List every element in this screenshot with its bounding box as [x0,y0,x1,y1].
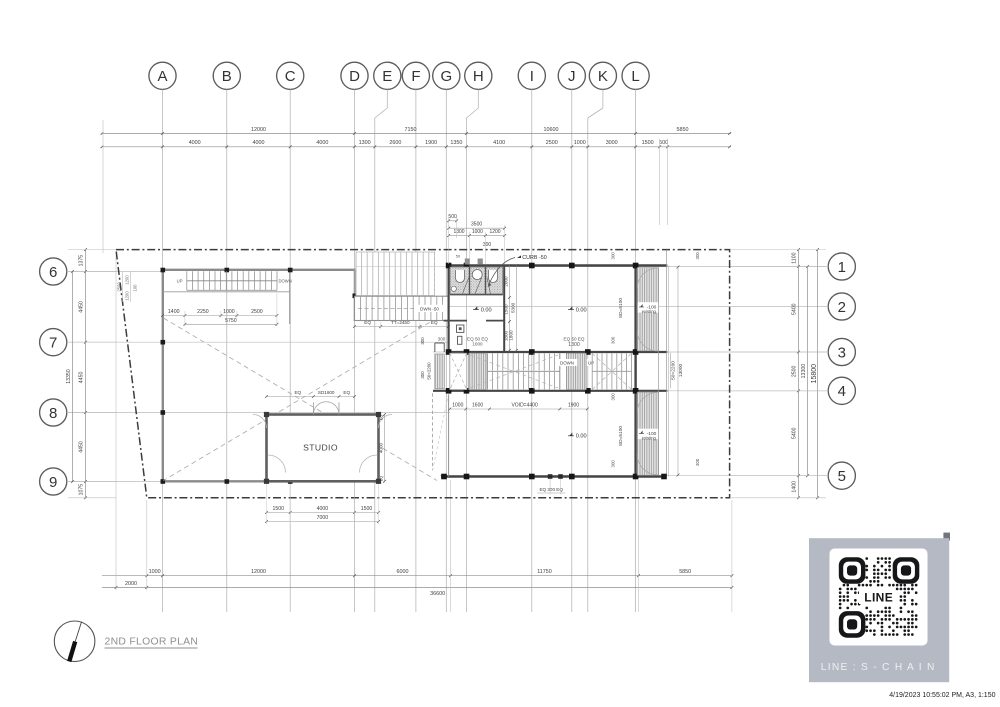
svg-text:EQ: EQ [294,390,301,395]
svg-text:I: I [530,68,534,85]
svg-text:50=2200: 50=2200 [671,361,677,380]
svg-text:6000: 6000 [397,569,409,575]
svg-text:3500: 3500 [471,222,482,228]
svg-text:UP: UP [177,279,183,284]
svg-text:1300: 1300 [453,229,464,235]
svg-text:4: 4 [838,383,846,400]
svg-text:2: 2 [838,299,846,316]
svg-text:EQ: EQ [379,476,383,482]
svg-text:5850: 5850 [677,127,689,133]
svg-text:EQ: EQ [431,320,438,325]
svg-text:DOWN: DOWN [279,279,292,284]
svg-text:1300: 1300 [568,342,580,348]
svg-text:50: 50 [456,253,461,258]
svg-text:300: 300 [610,252,615,260]
svg-text:300: 300 [438,336,446,341]
svg-text:4000: 4000 [317,506,329,512]
svg-text:2250: 2250 [197,309,209,315]
svg-text:1500: 1500 [361,506,373,512]
svg-text:1350: 1350 [450,140,462,146]
svg-text:12000: 12000 [251,127,266,133]
svg-text:1200: 1200 [124,291,129,301]
svg-text:C: C [285,68,296,85]
svg-text:8: 8 [49,405,57,422]
svg-text:1300: 1300 [359,140,371,146]
svg-text:EQ 300 EQ: EQ 300 EQ [539,487,563,492]
svg-text:1200: 1200 [489,229,500,235]
svg-text:7: 7 [49,335,57,352]
svg-text:300: 300 [420,371,425,379]
svg-text:5: 5 [838,468,846,485]
svg-text:1400: 1400 [168,309,180,315]
svg-text:5850: 5850 [679,569,691,575]
svg-text:500: 500 [659,140,668,146]
svg-text:1000: 1000 [149,569,161,575]
svg-text:1500: 1500 [273,506,285,512]
svg-text:A: A [157,68,167,85]
svg-text:STUDIO: STUDIO [303,442,338,452]
svg-text:4450: 4450 [79,301,85,313]
svg-text:4/19/2023 10:55:02 PM, A3, 1:1: 4/19/2023 10:55:02 PM, A3, 1:150 [889,692,995,699]
svg-text:4000: 4000 [378,442,383,453]
svg-text:4000: 4000 [253,140,265,146]
svg-text:1900: 1900 [568,402,579,408]
svg-text:DWN -50: DWN -50 [420,306,439,311]
svg-text:E: E [382,68,392,85]
svg-text:36600: 36600 [430,591,445,597]
svg-text:100: 100 [132,284,137,292]
svg-text:4000: 4000 [316,140,328,146]
svg-text:300: 300 [610,393,615,401]
svg-text:CURB -50: CURB -50 [522,255,547,261]
svg-text:13000: 13000 [678,364,684,378]
svg-text:1200: 1200 [124,275,129,285]
svg-text:300: 300 [420,337,425,345]
svg-text:15800: 15800 [811,364,818,384]
svg-text:50=2200: 50=2200 [427,362,432,380]
svg-text:1100: 1100 [792,252,798,263]
svg-text:9: 9 [49,474,57,491]
svg-text:4000: 4000 [189,140,201,146]
svg-text:K: K [598,68,608,85]
svg-text:L: L [631,68,639,85]
svg-text:300: 300 [610,460,615,468]
svg-text:0.00: 0.00 [576,434,587,440]
svg-text:5750: 5750 [225,318,237,324]
svg-text:13350: 13350 [66,369,72,384]
svg-text:1000: 1000 [472,342,483,347]
svg-text:1500: 1500 [642,140,654,146]
svg-text:SD=5100: SD=5100 [618,426,624,446]
svg-text:1500: 1500 [503,304,508,315]
svg-text:2500: 2500 [546,140,558,146]
svg-text:LINE : S - C H A I N: LINE : S - C H A I N [821,662,936,673]
svg-text:VOID=4400: VOID=4400 [511,402,537,408]
svg-text:1800: 1800 [508,330,513,341]
svg-text:TT=2450: TT=2450 [391,320,410,325]
svg-text:12000: 12000 [251,569,266,575]
svg-text:EQ: EQ [343,390,350,395]
svg-text:UP: UP [588,361,594,366]
svg-text:6: 6 [49,264,57,281]
svg-text:4450: 4450 [79,372,85,384]
svg-text:existing: existing [642,435,657,440]
svg-text:SD1600: SD1600 [318,390,335,395]
svg-text:1375: 1375 [79,255,85,267]
svg-text:SD=5100: SD=5100 [618,298,624,318]
svg-text:0.00: 0.00 [481,307,492,313]
svg-text:1000: 1000 [472,229,483,235]
svg-text:2ND FLOOR PLAN: 2ND FLOOR PLAN [105,637,199,648]
svg-text:300: 300 [610,336,615,344]
svg-text:1900: 1900 [425,140,437,146]
svg-text:F: F [411,68,420,85]
svg-text:7150: 7150 [405,127,417,133]
svg-text:1: 1 [838,259,846,276]
svg-text:existing: existing [642,309,657,314]
svg-text:B: B [222,68,232,85]
svg-text:EQ: EQ [364,320,371,325]
svg-text:1600: 1600 [472,402,483,408]
svg-text:13300: 13300 [801,364,807,379]
svg-text:2500: 2500 [792,366,798,378]
svg-text:EQ 50 EQ: EQ 50 EQ [564,336,585,341]
svg-text:2000: 2000 [503,276,508,287]
svg-text:1000: 1000 [574,140,586,146]
svg-text:10600: 10600 [544,127,559,133]
svg-text:5300: 5300 [510,302,515,313]
svg-text:G: G [440,68,452,85]
svg-text:EQ: EQ [379,415,383,421]
svg-text:2500: 2500 [251,309,263,315]
svg-text:1400: 1400 [792,481,798,493]
svg-text:2500: 2500 [116,282,121,292]
svg-text:2000: 2000 [125,581,137,587]
svg-text:DOWN: DOWN [560,361,574,366]
svg-text:1075: 1075 [79,484,85,496]
svg-text:7000: 7000 [317,515,329,521]
svg-text:300: 300 [483,242,492,248]
svg-text:LINE: LINE [864,591,893,605]
svg-text:4100: 4100 [493,140,505,146]
svg-text:500: 500 [448,214,457,220]
svg-text:D: D [349,68,360,85]
svg-text:4450: 4450 [79,441,85,453]
svg-text:0.00: 0.00 [576,307,587,313]
svg-text:300: 300 [695,458,700,466]
svg-text:5400: 5400 [792,303,798,315]
svg-text:3000: 3000 [606,140,618,146]
svg-text:11750: 11750 [537,569,552,575]
svg-text:1000: 1000 [452,402,463,408]
svg-text:1000: 1000 [223,309,235,315]
svg-text:H: H [473,68,484,85]
svg-text:3: 3 [838,344,846,361]
svg-text:300: 300 [695,252,700,260]
svg-text:J: J [568,68,576,85]
svg-text:2600: 2600 [389,140,401,146]
svg-text:5400: 5400 [792,427,798,439]
